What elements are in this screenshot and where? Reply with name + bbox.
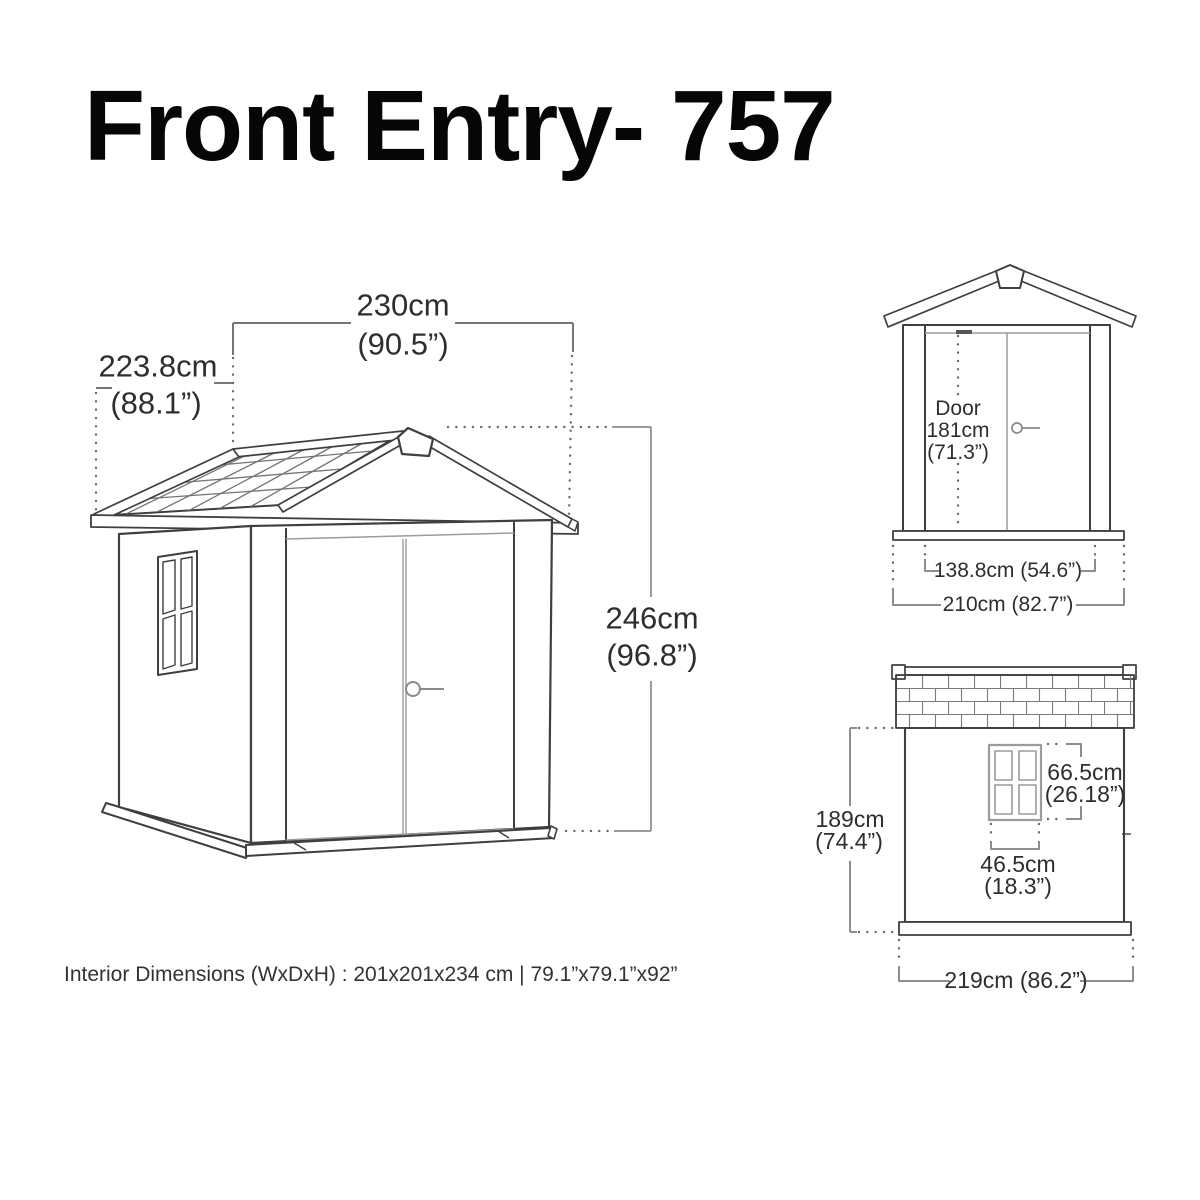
door-handle bbox=[406, 682, 420, 696]
side-window bbox=[158, 551, 197, 675]
main-width-label-in: (90.5”) bbox=[357, 329, 448, 362]
spec-sheet: Front Entry- 757 230cm (90.5”) 223.8cm (… bbox=[0, 0, 1200, 1200]
door-width-label: 138.8cm (54.6”) bbox=[934, 560, 1082, 582]
interior-dimensions-note: Interior Dimensions (WxDxH) : 201x201x23… bbox=[64, 963, 678, 987]
window-height-label-in: (26.18”) bbox=[1045, 782, 1126, 806]
wall-height-label-in: (74.4”) bbox=[815, 829, 883, 853]
door-label-word: Door bbox=[935, 398, 981, 420]
roof-cap bbox=[398, 428, 433, 456]
main-width-label-cm: 230cm bbox=[356, 290, 449, 323]
roof-cap bbox=[996, 265, 1024, 288]
side-elevation-drawing bbox=[850, 665, 1136, 981]
front-elevation-drawing bbox=[884, 265, 1136, 605]
door-label-in: (71.3”) bbox=[927, 442, 989, 464]
door-label-cm: 181cm bbox=[926, 420, 989, 442]
front-wall bbox=[251, 520, 552, 843]
page-title: Front Entry- 757 bbox=[84, 76, 835, 176]
main-depth-label-in: (88.1”) bbox=[110, 388, 201, 421]
main-shed-3d-drawing bbox=[91, 428, 578, 858]
main-height-label-cm: 246cm bbox=[605, 603, 698, 636]
window-width-label-in: (18.3”) bbox=[984, 874, 1052, 898]
overall-width-label: 210cm (82.7”) bbox=[943, 594, 1074, 616]
side-window bbox=[989, 745, 1041, 820]
main-depth-label-cm: 223.8cm bbox=[99, 351, 218, 384]
main-height-label-in: (96.8”) bbox=[606, 640, 697, 673]
overall-depth-label: 219cm (86.2”) bbox=[944, 968, 1087, 992]
door-handle bbox=[1012, 423, 1022, 433]
